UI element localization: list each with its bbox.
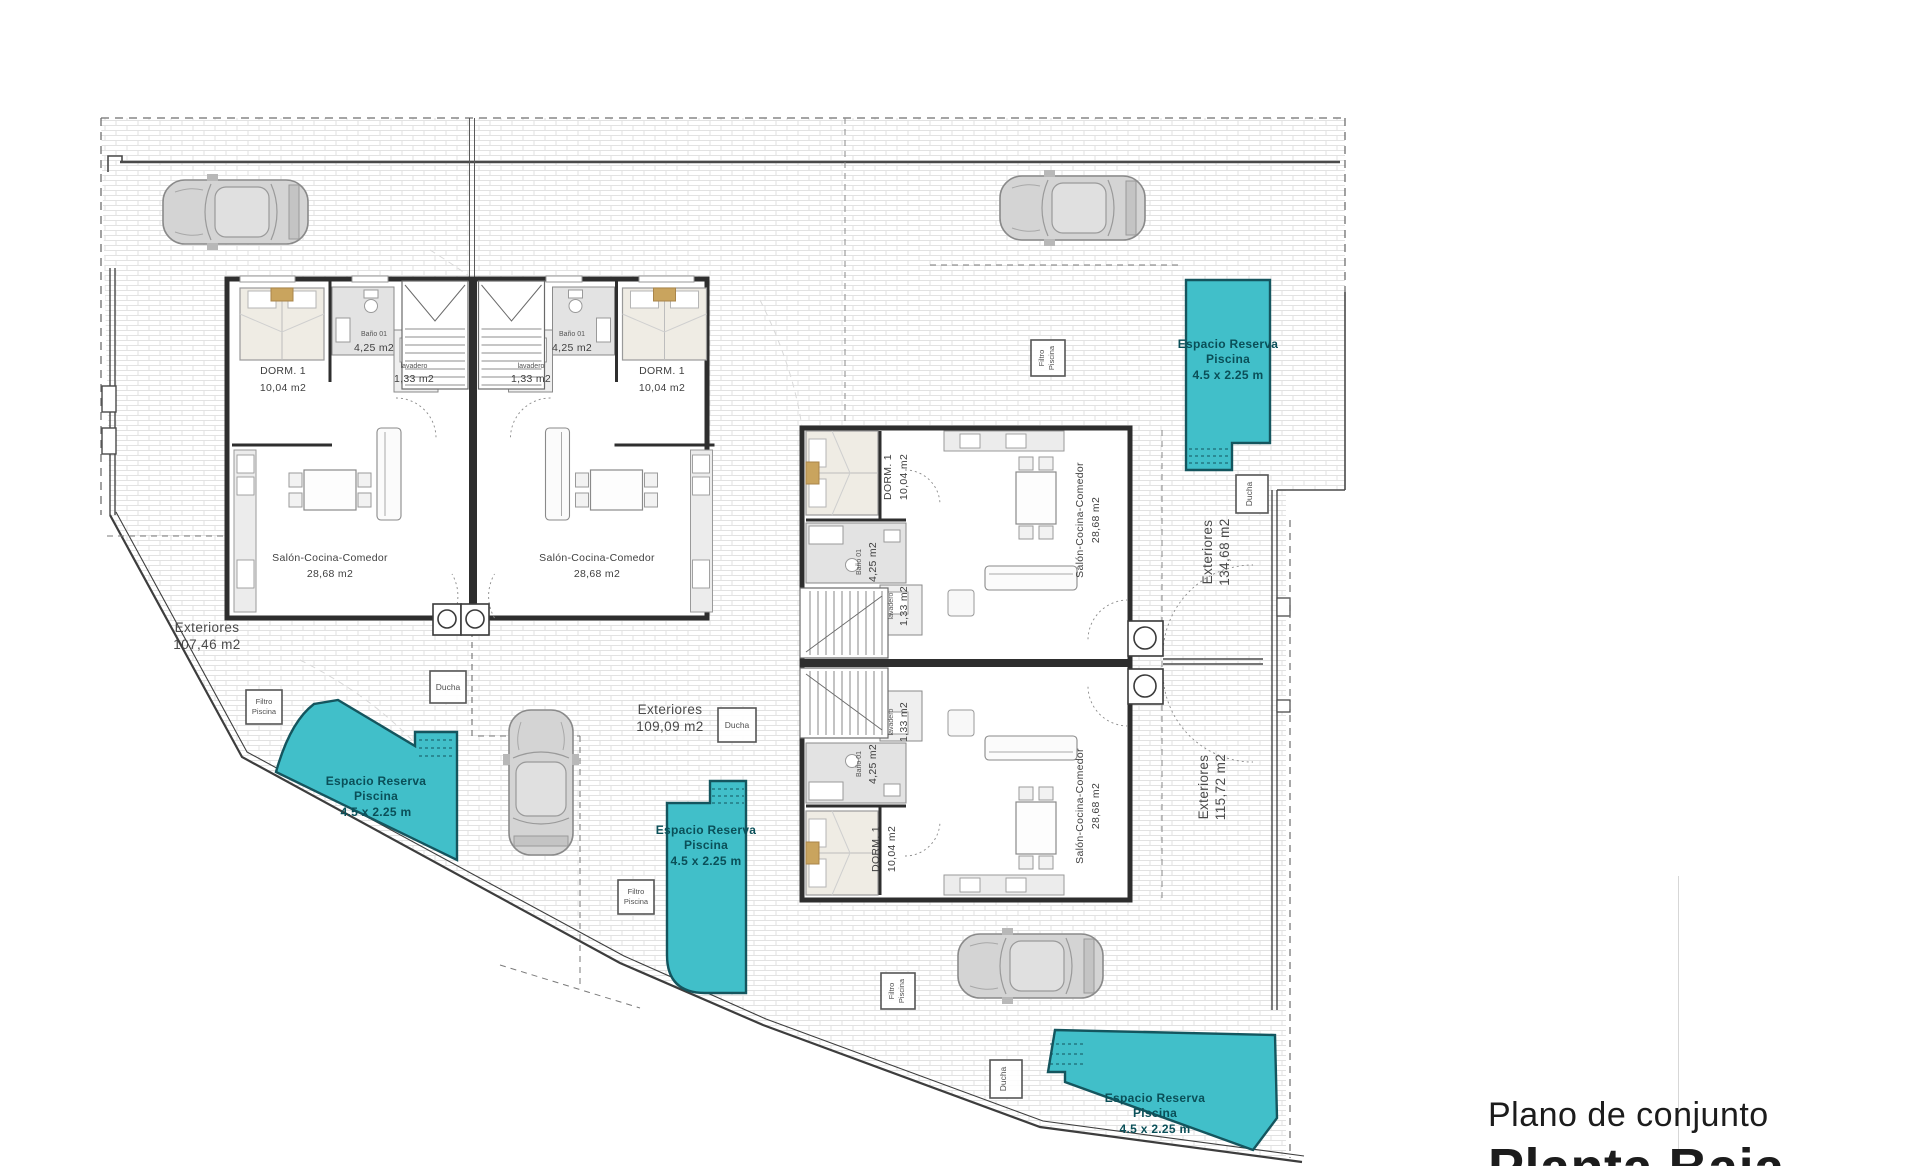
room-area-lavadero: 1,33 m2: [511, 373, 551, 385]
room-label-bano: Baño 01: [559, 331, 585, 338]
filter-label: Filtro: [256, 697, 273, 706]
room-area-bano: 4,25 m2: [354, 342, 394, 354]
shower-label: Ducha: [436, 682, 461, 692]
boundary-pillar: [102, 386, 116, 412]
exterior-area: 107,46 m2: [173, 637, 240, 652]
room-label-salon: Salón-Cocina-Comedor: [272, 552, 388, 564]
room-label-dorm: DORM. 1: [870, 826, 882, 872]
car: [1000, 170, 1145, 246]
room-area-dorm: 10,04 m2: [898, 454, 910, 500]
pool-center: [667, 781, 746, 993]
room-area-salon: 28,68 m2: [574, 568, 620, 580]
room-label-bano: Baño 01: [856, 751, 863, 777]
room-area-lavadero: 1,33 m2: [898, 586, 910, 626]
room-area-salon: 28,68 m2: [1090, 783, 1102, 829]
building-right: [800, 428, 1163, 900]
exterior-label: Exteriores: [175, 620, 240, 635]
floor-plan-page: Filtro Piscina Filtro Piscina Filtro Pis…: [0, 0, 1920, 1166]
pool-label: 4.5 x 2.25 m: [341, 805, 412, 819]
room-area-salon: 28,68 m2: [307, 568, 353, 580]
room-area-bano: 4,25 m2: [552, 342, 592, 354]
pool-label: Espacio Reserva: [1105, 1091, 1206, 1105]
pool-label: Piscina: [354, 789, 398, 803]
party-wall: [802, 659, 1130, 667]
room-label-lavadero: lavadero: [888, 708, 895, 735]
exterior-label: Exteriores: [638, 702, 703, 717]
pool-label: 4.5 x 2.25 m: [671, 854, 742, 868]
pool-label: 4.5 x 2.25 m: [1193, 368, 1264, 382]
car: [503, 710, 579, 855]
shower-label: Ducha: [725, 720, 750, 730]
room-label-dorm: DORM. 1: [882, 454, 894, 500]
pool-label: Espacio Reserva: [656, 823, 757, 837]
filter-label: Piscina: [252, 707, 277, 716]
title-block: Plano de conjunto Planta Baja: [1488, 1096, 1785, 1166]
pool-label: 4.5 x 2.25 m: [1120, 1122, 1191, 1136]
room-label-dorm: DORM. 1: [260, 365, 306, 377]
room-label-bano: Baño 01: [361, 331, 387, 338]
pool-label: Espacio Reserva: [326, 774, 427, 788]
exterior-area: 115,72 m2: [1213, 754, 1228, 820]
room-label-salon: Salón-Cocina-Comedor: [1074, 462, 1086, 578]
room-area-lavadero: 1,33 m2: [394, 373, 434, 385]
room-area-salon: 28,68 m2: [1090, 497, 1102, 543]
filter-label: Piscina: [1047, 345, 1056, 370]
room-label-salon: Salón-Cocina-Comedor: [539, 552, 655, 564]
pool-label: Piscina: [684, 838, 728, 852]
exterior-label: Exteriores: [1196, 755, 1211, 820]
filter-label: Filtro: [887, 983, 896, 1000]
site-plan-drawing: Filtro Piscina Filtro Piscina Filtro Pis…: [0, 0, 1920, 1166]
room-area-lavadero: 1,33 m2: [898, 702, 910, 742]
exterior-area: 109,09 m2: [636, 719, 703, 734]
car: [958, 928, 1103, 1004]
room-label-bano: Baño 01: [856, 549, 863, 575]
pool-label: Piscina: [1206, 352, 1250, 366]
filter-label: Filtro: [1037, 350, 1046, 367]
room-label-lavadero: lavadero: [888, 592, 895, 619]
room-label-salon: Salón-Cocina-Comedor: [1074, 748, 1086, 864]
shower-label: Ducha: [998, 1066, 1008, 1091]
exterior-area: 134,68 m2: [1217, 518, 1232, 585]
filter-label: Filtro: [628, 887, 645, 896]
car: [163, 174, 308, 250]
room-area-dorm: 10,04 m2: [639, 382, 685, 394]
plan-subtitle: Planta Baja: [1488, 1137, 1785, 1166]
boundary-pillar: [102, 428, 116, 454]
room-area-bano: 4,25 m2: [867, 542, 879, 582]
plan-title: Plano de conjunto: [1488, 1096, 1785, 1135]
room-area-dorm: 10,04 m2: [886, 826, 898, 872]
room-label-lavadero: lavadero: [401, 363, 428, 370]
shower-label: Ducha: [1244, 481, 1254, 506]
room-label-dorm: DORM. 1: [639, 365, 685, 377]
pool-label: Espacio Reserva: [1178, 337, 1279, 351]
filter-label: Piscina: [897, 978, 906, 1003]
filter-label: Piscina: [624, 897, 649, 906]
pool-label: Piscina: [1133, 1106, 1177, 1120]
party-wall: [469, 279, 477, 618]
entry-porches-left: [433, 604, 489, 635]
room-area-bano: 4,25 m2: [867, 744, 879, 784]
room-area-dorm: 10,04 m2: [260, 382, 306, 394]
exterior-label: Exteriores: [1200, 520, 1215, 585]
building-left: [227, 276, 715, 635]
room-label-lavadero: lavadero: [518, 363, 545, 370]
